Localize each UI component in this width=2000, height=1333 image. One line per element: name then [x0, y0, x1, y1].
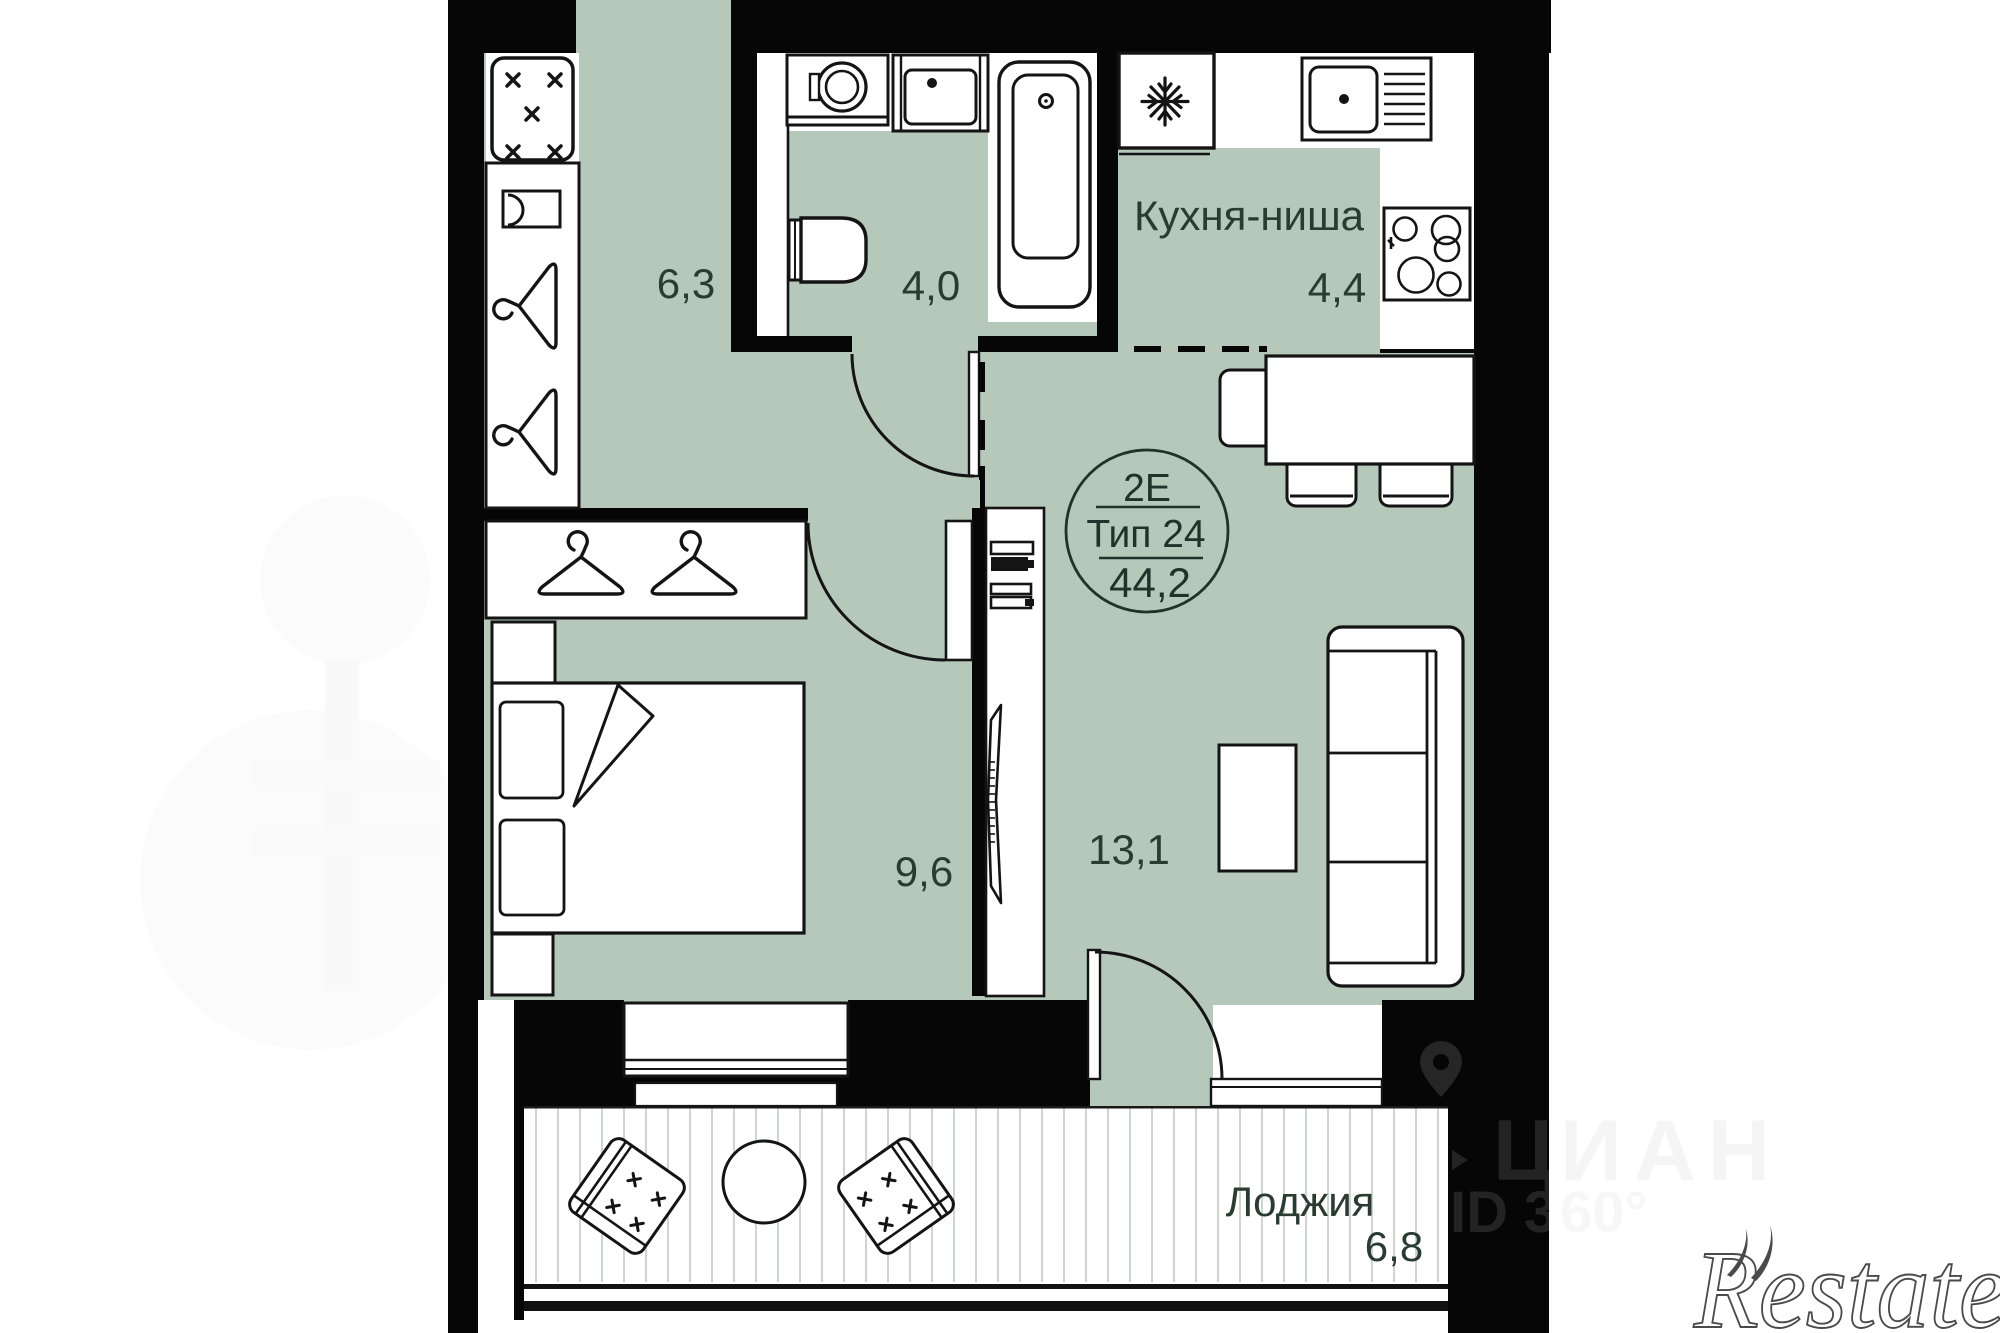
svg-text:4,4: 4,4: [1308, 264, 1366, 311]
svg-text:6,3: 6,3: [657, 260, 715, 307]
svg-text:Кухня-ниша: Кухня-ниша: [1134, 192, 1365, 239]
svg-text:4,0: 4,0: [902, 262, 960, 309]
svg-text:Лоджия: Лоджия: [1226, 1178, 1375, 1225]
svg-text:Restate: Restate: [1693, 1229, 2000, 1333]
svg-text:6,8: 6,8: [1365, 1223, 1423, 1270]
svg-text:2Е: 2Е: [1123, 467, 1171, 510]
svg-text:13,1: 13,1: [1088, 826, 1170, 873]
svg-text:60°: 60°: [1560, 1180, 1648, 1245]
svg-text:44,2: 44,2: [1109, 559, 1191, 606]
svg-text:9,6: 9,6: [895, 848, 953, 895]
svg-text:ID 3: ID 3: [1450, 1180, 1556, 1245]
svg-text:Тип 24: Тип 24: [1086, 513, 1205, 556]
